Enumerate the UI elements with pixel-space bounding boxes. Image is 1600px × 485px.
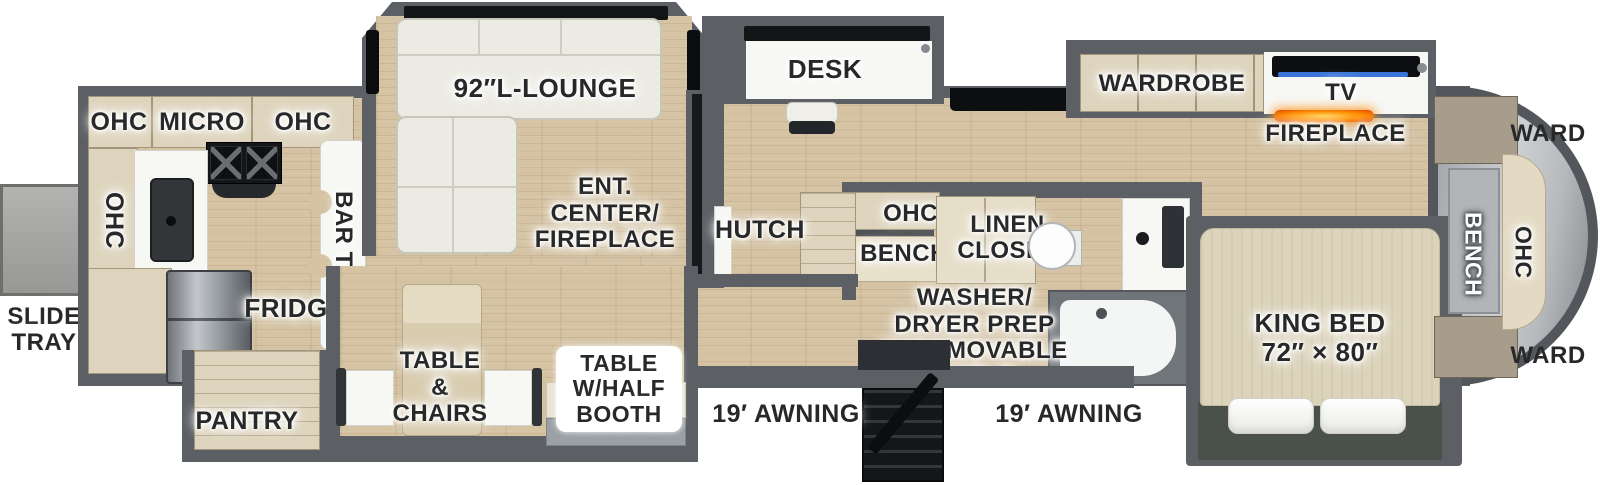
tv-bracket-dot bbox=[1417, 63, 1427, 73]
dining-chair-left-back bbox=[336, 368, 346, 426]
tv-label: TV bbox=[1305, 80, 1377, 106]
ohc-front-label: OHC bbox=[252, 108, 354, 138]
front-bench-label: BENCH bbox=[1458, 192, 1488, 316]
ohc-side-label: OHC bbox=[96, 176, 130, 266]
ohc-rear-label: OHC bbox=[84, 108, 154, 138]
desk-grommet bbox=[921, 44, 930, 53]
hutch-label: HUTCH bbox=[705, 216, 815, 246]
awning-bedroom-label: 19′ AWNING bbox=[995, 400, 1143, 430]
sofa-seam bbox=[398, 186, 516, 188]
sofa-seam bbox=[478, 20, 480, 56]
micro-label: MICRO bbox=[152, 108, 252, 138]
vanity-faucet bbox=[1162, 206, 1184, 268]
lounge-label: 92″L-LOUNGE bbox=[450, 72, 640, 104]
lounge-window-left bbox=[366, 30, 379, 94]
lounge-window-right bbox=[687, 30, 700, 92]
slide-tray-label: SLIDE TRAY bbox=[0, 298, 88, 362]
desk-label: DESK bbox=[775, 54, 875, 84]
ward-front-top-label: WARD bbox=[1492, 120, 1600, 148]
top-wall-window bbox=[950, 88, 1084, 111]
ward-front-bottom-label: WARD bbox=[1492, 342, 1600, 370]
bathtub-drain bbox=[1096, 308, 1107, 319]
pillow-left bbox=[1228, 398, 1314, 434]
sectional-sofa-chaise bbox=[396, 116, 518, 254]
floorplan: SLIDE TRAY OHC MICRO OHC OHC BAR TOP FRI… bbox=[0, 0, 1600, 485]
kitchen-faucet bbox=[166, 216, 176, 226]
ent-center-face bbox=[692, 94, 702, 284]
pillow-right bbox=[1320, 398, 1406, 434]
sofa-seam bbox=[560, 20, 562, 56]
booth-label: TABLE W/HALF BOOTH bbox=[556, 348, 682, 430]
front-ohc-label: OHC bbox=[1508, 210, 1538, 294]
vanity-sink-drain bbox=[1136, 232, 1149, 245]
toilet bbox=[1028, 222, 1076, 270]
entry-landing bbox=[858, 340, 950, 370]
sofa-seam bbox=[398, 54, 660, 56]
awning-door-label: 19′ AWNING bbox=[702, 400, 870, 430]
pantry-label: PANTRY bbox=[186, 406, 308, 438]
table-chairs-label: TABLE & CHAIRS bbox=[378, 342, 502, 434]
desk-slide-topper bbox=[744, 26, 930, 41]
wardrobe-label: WARDROBE bbox=[1084, 70, 1260, 98]
desk-chair-back bbox=[789, 121, 835, 134]
fireplace-label: FIREPLACE bbox=[1258, 120, 1413, 148]
slide-tray-platform bbox=[0, 184, 86, 296]
range-hood bbox=[212, 184, 276, 198]
dining-chair-right-back bbox=[532, 368, 542, 426]
tv-screen-glow bbox=[1278, 72, 1408, 77]
stove-burner-left bbox=[210, 146, 242, 180]
kitchen-corner-cabinet bbox=[88, 268, 172, 374]
sectional-sofa-top bbox=[396, 18, 662, 120]
stove-burner-right bbox=[246, 146, 278, 180]
desk-chair bbox=[786, 102, 838, 123]
bathtub bbox=[1060, 300, 1176, 376]
dining-table-leaf bbox=[403, 285, 481, 323]
king-bed-label: KING BED 72″ × 80″ bbox=[1228, 306, 1412, 370]
sofa-seam bbox=[452, 118, 454, 252]
ent-center-label: ENT. CENTER/ FIREPLACE bbox=[520, 168, 690, 260]
walkway-wall bbox=[690, 274, 858, 287]
